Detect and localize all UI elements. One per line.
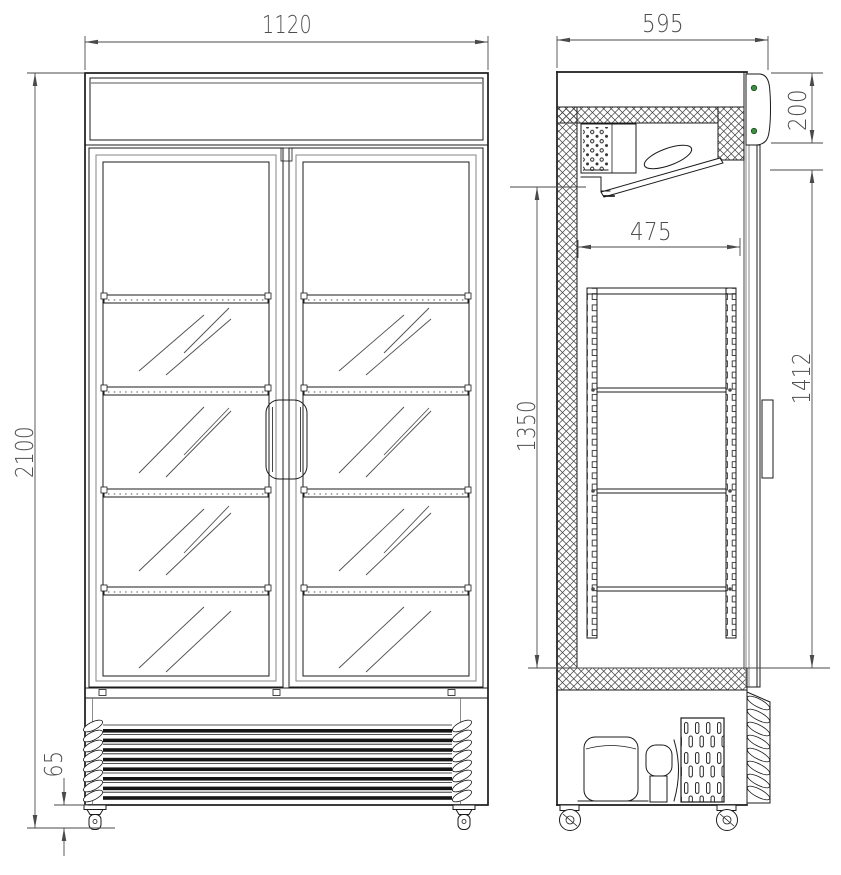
right-door-glass bbox=[303, 162, 469, 676]
shelf bbox=[101, 385, 271, 395]
dim-interior-height-label: 1350 bbox=[512, 400, 541, 452]
shelf bbox=[301, 487, 471, 497]
cooler-technical-drawing: 1120 595 2100 200 bbox=[0, 0, 841, 875]
condenser-coil bbox=[681, 718, 724, 802]
shelf bbox=[301, 293, 471, 303]
side-header-panel bbox=[746, 74, 771, 145]
front-left-door bbox=[89, 148, 283, 687]
shelf bbox=[301, 585, 471, 595]
dim-interior-depth-475: 475 bbox=[578, 217, 740, 258]
side-shelf bbox=[591, 587, 732, 591]
dim-width-label: 1120 bbox=[262, 10, 312, 39]
evaporator-unit bbox=[581, 124, 636, 173]
louver-end-caps-right bbox=[451, 718, 473, 804]
side-shelf-rack bbox=[587, 288, 736, 638]
shelf bbox=[101, 585, 271, 595]
side-caster-right bbox=[717, 805, 738, 831]
front-header-lightbox bbox=[85, 78, 488, 145]
front-shelves-left bbox=[101, 293, 271, 595]
fan-motor bbox=[646, 740, 679, 802]
machine-compartment bbox=[578, 692, 771, 803]
front-right-door bbox=[289, 148, 483, 687]
side-caster-left bbox=[560, 805, 581, 831]
front-caster-right bbox=[453, 805, 475, 830]
dim-height-2100: 2100 bbox=[10, 73, 115, 828]
side-shelf bbox=[591, 489, 732, 493]
power-led-icon bbox=[751, 85, 756, 90]
right-door-frame bbox=[289, 148, 483, 687]
dim-width-1120: 1120 bbox=[85, 10, 488, 70]
shelf bbox=[301, 385, 471, 395]
side-louver-grille bbox=[746, 692, 772, 803]
side-door-handle bbox=[762, 400, 773, 478]
fan-shroud-arc bbox=[674, 740, 679, 801]
louver-end-caps-left bbox=[82, 718, 104, 804]
shelf bbox=[101, 293, 271, 303]
dim-door-height-label: 1412 bbox=[787, 352, 816, 404]
dim-depth-label: 595 bbox=[642, 9, 684, 38]
side-door bbox=[746, 145, 773, 687]
shelf bbox=[101, 487, 271, 497]
insulation-hatch bbox=[557, 107, 747, 690]
dim-caster-65: 65 bbox=[39, 751, 88, 857]
front-door-handle bbox=[266, 400, 307, 479]
left-door-glass bbox=[103, 162, 269, 676]
dim-header-200: 200 bbox=[771, 73, 823, 143]
front-view bbox=[82, 73, 488, 830]
front-shelves-right bbox=[301, 293, 471, 595]
temp-led-icon bbox=[751, 128, 756, 133]
technical-drawing-page: 1120 595 2100 200 bbox=[0, 0, 841, 875]
compressor bbox=[578, 737, 648, 801]
dim-height-label: 2100 bbox=[10, 426, 39, 478]
front-cabinet-outline bbox=[85, 73, 488, 805]
left-door-frame bbox=[89, 148, 283, 687]
front-caster-left bbox=[84, 805, 106, 830]
dim-header-label: 200 bbox=[783, 89, 812, 131]
dim-door-height-1412: 1412 bbox=[770, 170, 823, 668]
front-louver-grille bbox=[82, 718, 473, 804]
side-shelf bbox=[591, 388, 732, 392]
side-view bbox=[557, 72, 773, 831]
dim-depth-595: 595 bbox=[557, 9, 768, 70]
dim-caster-label: 65 bbox=[39, 751, 68, 778]
dim-interior-depth-label: 475 bbox=[630, 217, 672, 246]
